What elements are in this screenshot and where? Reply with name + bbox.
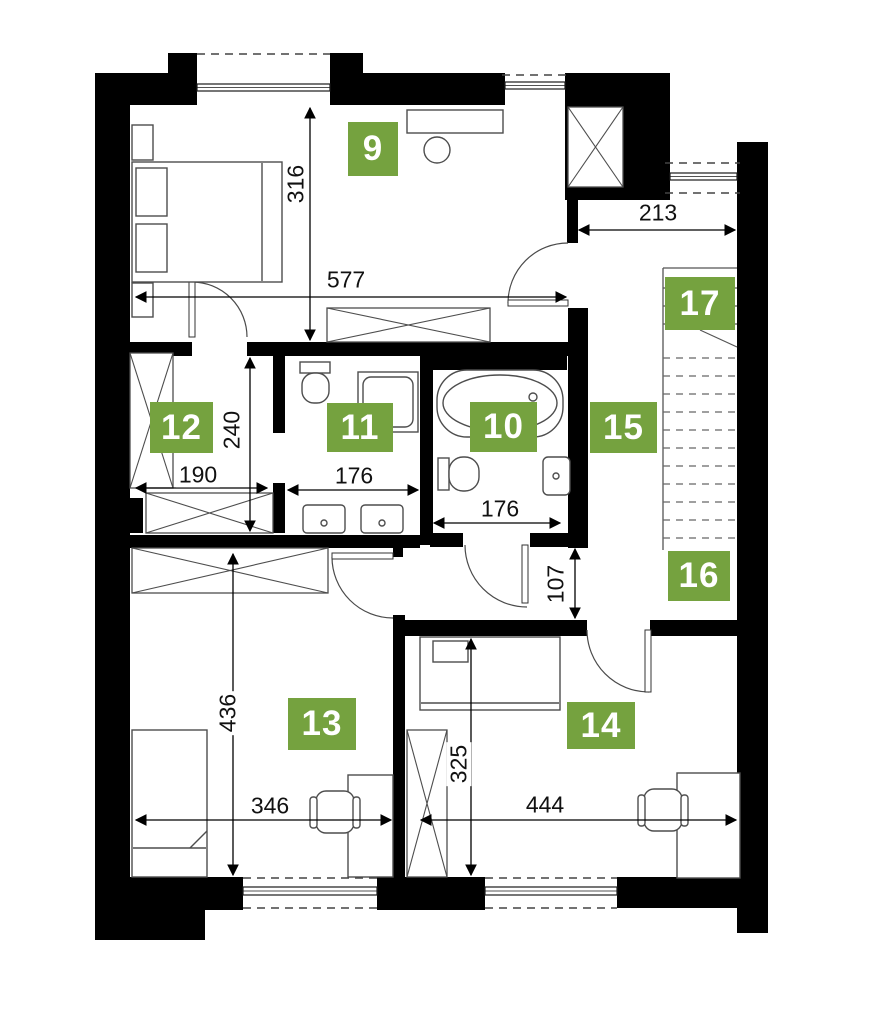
jamb-room13 [393, 537, 403, 557]
desk-room9 [407, 110, 503, 133]
bottom-wall-right [617, 877, 740, 908]
window-bottom-left [243, 887, 377, 895]
bottom-wall-mid [377, 877, 485, 910]
wall-bath10-south-l [430, 533, 463, 547]
floor-plan-drawing [0, 0, 871, 1024]
door-room10 [465, 545, 528, 607]
sink-room11-right [361, 505, 403, 533]
toilet-room10-tank [438, 458, 449, 490]
wardrobe-room14 [407, 730, 447, 877]
door-room14 [587, 630, 651, 692]
door-room12 [189, 282, 247, 337]
partition-13-14 [393, 615, 405, 877]
chair-room13-arm-left [310, 797, 317, 828]
sideboard-room13 [132, 548, 328, 593]
shower-room11-inner [363, 377, 413, 427]
top-wall-mid [330, 73, 505, 105]
toilet-room10-bowl [449, 457, 479, 491]
nightstand-top [132, 125, 153, 160]
floor-plan: 91011121314151617 3165772132401901761761… [0, 0, 871, 1024]
bathtub-room10-inner [443, 375, 557, 431]
window-top-left [197, 84, 330, 91]
bottom-corner-left [95, 877, 205, 940]
sideboard-room9 [327, 308, 490, 342]
top-wall-left [95, 73, 197, 105]
chair-room14-arm-right [681, 795, 688, 826]
wall-bath10-north-in [427, 356, 567, 370]
bed-room14-pillow [433, 641, 468, 662]
wall-11-10 [420, 342, 433, 545]
chair-room14-seat [644, 789, 682, 831]
toilet-room11-tank [300, 362, 330, 373]
stub-room12 [130, 498, 143, 533]
wall-hall-west [568, 308, 588, 548]
wall-hall-south-left [405, 620, 587, 636]
wardrobe-room12-tall [130, 353, 173, 488]
wardrobe-room12-low [146, 493, 273, 533]
sink-room11-left-faucet [321, 520, 327, 526]
pillar-left [168, 53, 197, 74]
shaft [568, 107, 623, 187]
window-right [670, 173, 737, 180]
wall-12-11-lower [273, 483, 285, 533]
wall-12-11-upper [273, 342, 285, 433]
right-wall [737, 142, 768, 933]
window-bottom-right [485, 887, 617, 895]
bed-room13-frame [132, 730, 207, 877]
bed-room9-pillow-2 [136, 224, 167, 272]
stairs-cut-line [700, 330, 737, 347]
nightstand-bottom [132, 283, 153, 317]
toilet-room11-bowl [302, 373, 329, 403]
wall-hall-south-right [650, 620, 740, 636]
sink-room11-left [303, 505, 345, 533]
staircase [663, 268, 737, 550]
stool-room9 [424, 137, 450, 163]
wall-hall-west-stub [567, 190, 578, 243]
sink-room10-faucet [553, 473, 559, 479]
door-room13 [332, 553, 393, 618]
window-top-right [505, 82, 565, 89]
wall-bath10-north [427, 342, 588, 356]
wall-south-baths [130, 535, 420, 548]
bathtub-room10-faucet [529, 393, 537, 401]
left-wall [95, 73, 130, 940]
pillar-mid [330, 53, 363, 74]
chair-room13-seat [316, 791, 354, 833]
sink-room11-right-faucet [379, 520, 385, 526]
chair-room13-arm-right [353, 797, 360, 828]
bed-room9-pillow-1 [136, 168, 167, 216]
chair-room14-arm-left [638, 795, 645, 826]
